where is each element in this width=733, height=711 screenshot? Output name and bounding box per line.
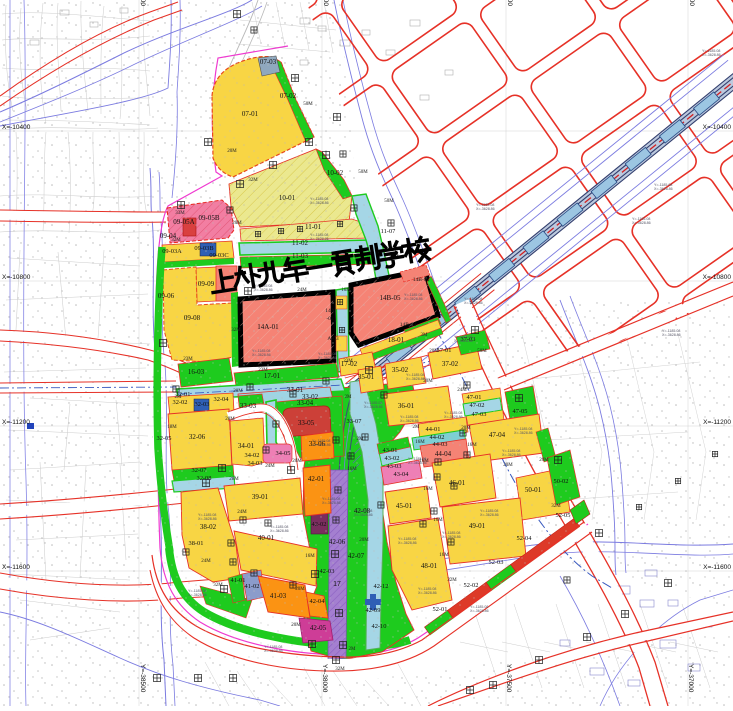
svg-text:37-02: 37-02 [442, 360, 459, 368]
svg-text:35-01: 35-01 [358, 373, 375, 381]
svg-text:17: 17 [333, 581, 341, 588]
svg-text:32M: 32M [248, 178, 258, 183]
svg-text:33-07: 33-07 [347, 418, 363, 425]
svg-text:20M: 20M [423, 379, 433, 384]
svg-text:44-04: 44-04 [435, 450, 452, 458]
svg-text:52-03: 52-03 [489, 559, 504, 566]
svg-text:32-04: 32-04 [214, 396, 230, 403]
svg-text:20M: 20M [227, 149, 237, 154]
svg-text:09-08: 09-08 [184, 314, 201, 322]
svg-text:50M: 50M [358, 170, 368, 175]
svg-text:52-05: 52-05 [556, 512, 571, 519]
svg-text:23M: 23M [258, 368, 268, 373]
svg-text:X=-3628.86: X=-3628.86 [702, 53, 721, 57]
svg-text:48-01: 48-01 [421, 562, 438, 570]
svg-text:32-02: 32-02 [173, 399, 188, 406]
svg-text:34-05: 34-05 [276, 450, 291, 457]
svg-text:23M: 23M [183, 357, 193, 362]
svg-text:18-01: 18-01 [388, 336, 405, 344]
svg-text:X=-11200: X=-11200 [2, 419, 30, 426]
svg-text:X=-3628.86: X=-3628.86 [270, 529, 289, 533]
svg-text:X=-3628.86: X=-3628.86 [354, 513, 373, 517]
svg-text:32-05: 32-05 [157, 435, 172, 442]
svg-text:X=-3628.86: X=-3628.86 [454, 339, 473, 343]
svg-text:42-03: 42-03 [320, 568, 335, 575]
svg-text:Y=-38500: Y=-38500 [139, 664, 146, 693]
svg-text:07-03: 07-03 [260, 58, 277, 66]
svg-text:Y=-37000: Y=-37000 [687, 664, 694, 693]
svg-text:-02: -02 [326, 316, 334, 322]
svg-text:09-09: 09-09 [198, 280, 215, 288]
svg-text:Y=-38000: Y=-38000 [322, 0, 329, 6]
svg-text:20M: 20M [295, 587, 305, 592]
svg-text:34-02: 34-02 [245, 452, 260, 459]
svg-text:33M: 33M [175, 211, 185, 216]
svg-text:X=-3628.86: X=-3628.86 [654, 187, 673, 191]
svg-text:11-07: 11-07 [381, 228, 396, 235]
svg-text:X=-10400: X=-10400 [703, 124, 732, 131]
svg-text:X=-3628.86: X=-3628.86 [408, 461, 427, 465]
svg-text:42-02: 42-02 [312, 521, 327, 528]
svg-text:Y=-38000: Y=-38000 [321, 664, 328, 693]
svg-text:42-09: 42-09 [366, 607, 381, 614]
svg-text:16M: 16M [341, 288, 351, 293]
svg-text:10-02: 10-02 [327, 169, 344, 177]
svg-text:24M: 24M [297, 288, 307, 293]
svg-text:16M: 16M [423, 487, 433, 492]
svg-text:42-12: 42-12 [374, 583, 389, 590]
svg-text:Y=-38500: Y=-38500 [139, 0, 146, 6]
svg-text:X=-3628.86: X=-3628.86 [464, 301, 483, 305]
svg-text:32M: 32M [171, 238, 181, 243]
svg-text:32-06: 32-06 [189, 433, 206, 441]
svg-text:41-01: 41-01 [231, 577, 246, 584]
svg-text:11-02: 11-02 [292, 239, 309, 247]
svg-text:20M: 20M [292, 459, 302, 464]
svg-text:X=-3628.86: X=-3628.86 [198, 517, 217, 521]
svg-text:X=-10400: X=-10400 [2, 124, 31, 131]
svg-text:X=-3628.86: X=-3628.86 [310, 237, 329, 241]
svg-text:40-01: 40-01 [258, 534, 275, 542]
svg-text:47-01: 47-01 [467, 394, 482, 401]
svg-text:X=-3628.86: X=-3628.86 [418, 591, 437, 595]
svg-text:52-02: 52-02 [464, 582, 479, 589]
svg-text:X=-3628.86: X=-3628.86 [406, 377, 425, 381]
svg-text:2M: 2M [349, 647, 357, 652]
svg-text:Y=-37500: Y=-37500 [506, 0, 513, 6]
svg-text:36-01: 36-01 [398, 402, 415, 410]
svg-text:16M: 16M [439, 553, 449, 558]
svg-text:X=-10800: X=-10800 [2, 274, 31, 281]
svg-text:50M: 50M [303, 102, 313, 107]
svg-text:X=-3628.86: X=-3628.86 [364, 405, 383, 409]
svg-text:X=-3628.86: X=-3628.86 [502, 453, 521, 457]
svg-text:2M: 2M [357, 437, 365, 442]
svg-text:32-03: 32-03 [195, 401, 210, 408]
svg-text:X=-11200: X=-11200 [703, 419, 731, 426]
svg-text:14B-05: 14B-05 [380, 294, 402, 302]
svg-text:20M: 20M [232, 221, 242, 226]
svg-text:32-07: 32-07 [192, 467, 208, 474]
svg-text:X=-3628.86: X=-3628.86 [252, 353, 271, 357]
svg-text:49-01: 49-01 [469, 522, 486, 530]
svg-text:10-01: 10-01 [279, 194, 296, 202]
svg-text:42-05: 42-05 [310, 624, 327, 632]
svg-text:14A: 14A [325, 308, 335, 314]
svg-text:A-03: A-03 [327, 336, 339, 342]
svg-text:2M: 2M [345, 395, 353, 400]
svg-text:16M: 16M [467, 443, 477, 448]
svg-text:X=-3628.86: X=-3628.86 [632, 221, 651, 225]
svg-text:32M: 32M [551, 504, 561, 509]
svg-text:X=-3628.86: X=-3628.86 [312, 443, 331, 447]
svg-text:09-06: 09-06 [158, 292, 175, 300]
svg-text:20M: 20M [359, 538, 369, 543]
svg-text:42-07: 42-07 [348, 552, 365, 560]
svg-text:50-01: 50-01 [525, 486, 542, 494]
svg-text:09-03C: 09-03C [209, 252, 228, 259]
svg-text:2M: 2M [175, 395, 183, 400]
svg-text:44-03: 44-03 [433, 441, 448, 448]
svg-text:16M: 16M [347, 467, 357, 472]
svg-text:45-01: 45-01 [396, 502, 413, 510]
svg-text:20M: 20M [291, 623, 301, 628]
svg-text:38-02: 38-02 [200, 523, 217, 531]
svg-text:42-04: 42-04 [310, 598, 326, 605]
svg-text:20M: 20M [429, 349, 439, 354]
svg-text:X=-3628.86: X=-3628.86 [444, 415, 463, 419]
svg-text:X=-11600: X=-11600 [703, 564, 731, 571]
svg-text:32M: 32M [335, 667, 345, 672]
svg-text:47-05: 47-05 [513, 408, 528, 415]
svg-text:41-02: 41-02 [245, 583, 260, 590]
svg-text:42-06: 42-06 [329, 538, 346, 546]
svg-text:16M: 16M [305, 554, 315, 559]
svg-text:33-04: 33-04 [297, 399, 314, 407]
svg-text:32M: 32M [447, 578, 457, 583]
svg-text:44-02: 44-02 [430, 434, 445, 441]
svg-text:X=-10800: X=-10800 [703, 274, 732, 281]
svg-text:14A-01: 14A-01 [257, 323, 279, 331]
svg-text:43-01: 43-01 [383, 447, 398, 454]
svg-text:2M: 2M [413, 425, 421, 430]
svg-text:28M: 28M [229, 477, 239, 482]
svg-text:41-03: 41-03 [270, 592, 287, 600]
svg-text:X=-3628.86: X=-3628.86 [514, 431, 533, 435]
svg-text:16M: 16M [415, 440, 425, 445]
svg-text:Y=-37000: Y=-37000 [688, 0, 695, 6]
svg-text:43-02: 43-02 [385, 455, 400, 462]
svg-text:X=-3628.86: X=-3628.86 [442, 535, 461, 539]
svg-text:X=-3628.86: X=-3628.86 [188, 593, 207, 597]
svg-text:07-01: 07-01 [242, 110, 259, 118]
svg-text:52-04: 52-04 [517, 535, 533, 542]
svg-text:47-04: 47-04 [489, 431, 506, 439]
svg-text:11-03: 11-03 [292, 252, 309, 260]
svg-text:23M: 23M [343, 359, 353, 364]
svg-text:37-01: 37-01 [437, 347, 452, 354]
svg-text:32M: 32M [231, 328, 241, 333]
svg-text:24M: 24M [265, 464, 275, 469]
svg-text:11-01: 11-01 [305, 223, 322, 231]
svg-text:47-02: 47-02 [470, 402, 485, 409]
svg-text:28M: 28M [225, 417, 235, 422]
svg-text:X=-3628.86: X=-3628.86 [264, 649, 283, 653]
svg-text:24M: 24M [457, 388, 467, 393]
svg-text:X=-3628.86: X=-3628.86 [322, 501, 341, 505]
svg-text:X=-3628.86: X=-3628.86 [398, 541, 417, 545]
svg-text:44-01: 44-01 [426, 426, 441, 433]
svg-text:33-05: 33-05 [298, 419, 315, 427]
svg-text:50M: 50M [477, 349, 487, 354]
svg-text:X=-3628.86: X=-3628.86 [400, 419, 419, 423]
svg-text:42-10: 42-10 [372, 623, 387, 630]
svg-text:20M: 20M [539, 458, 549, 463]
svg-text:3M: 3M [421, 333, 429, 338]
svg-text:09-03A: 09-03A [162, 248, 182, 255]
svg-text:50M: 50M [384, 199, 394, 204]
svg-text:52-01: 52-01 [433, 606, 448, 613]
svg-text:18M: 18M [167, 425, 177, 430]
svg-text:07-02: 07-02 [280, 92, 297, 100]
svg-text:09-03B: 09-03B [194, 245, 213, 252]
svg-text:09-05B: 09-05B [199, 214, 220, 222]
svg-text:33-03: 33-03 [240, 402, 257, 410]
svg-text:X=-3628.86: X=-3628.86 [254, 288, 273, 292]
svg-text:34-03: 34-03 [248, 460, 263, 467]
svg-text:X=-3628.86: X=-3628.86 [476, 207, 495, 211]
svg-text:39-01: 39-01 [252, 493, 269, 501]
svg-text:16-03: 16-03 [188, 368, 205, 376]
svg-text:20M: 20M [503, 463, 513, 468]
svg-text:14B-04: 14B-04 [413, 277, 430, 283]
svg-text:42-01: 42-01 [308, 475, 325, 483]
svg-text:X=-3628.86: X=-3628.86 [662, 333, 681, 337]
svg-text:Y=-37500: Y=-37500 [505, 664, 512, 693]
svg-text:38-01: 38-01 [189, 540, 204, 547]
svg-text:50-02: 50-02 [554, 478, 569, 485]
svg-text:43-04: 43-04 [394, 471, 410, 478]
svg-text:24M: 24M [201, 559, 211, 564]
svg-text:X=-3628.86: X=-3628.86 [470, 609, 489, 613]
svg-text:X=-3628.86: X=-3628.86 [310, 201, 329, 205]
svg-text:16M: 16M [433, 518, 443, 523]
svg-text:47-03: 47-03 [472, 411, 487, 418]
svg-text:14B-03: 14B-03 [400, 322, 417, 328]
svg-text:X=-3628.86: X=-3628.86 [318, 356, 337, 360]
svg-text:20M: 20M [233, 389, 243, 394]
svg-text:34-01: 34-01 [238, 442, 255, 450]
svg-text:43-03: 43-03 [387, 463, 402, 470]
svg-text:X=-3628.86: X=-3628.86 [404, 297, 423, 301]
svg-text:09-05A: 09-05A [173, 218, 194, 226]
svg-text:X=-3628.86: X=-3628.86 [480, 513, 499, 517]
svg-text:17-01: 17-01 [264, 372, 281, 380]
svg-text:X=-11600: X=-11600 [2, 564, 30, 571]
svg-text:24M: 24M [237, 510, 247, 515]
